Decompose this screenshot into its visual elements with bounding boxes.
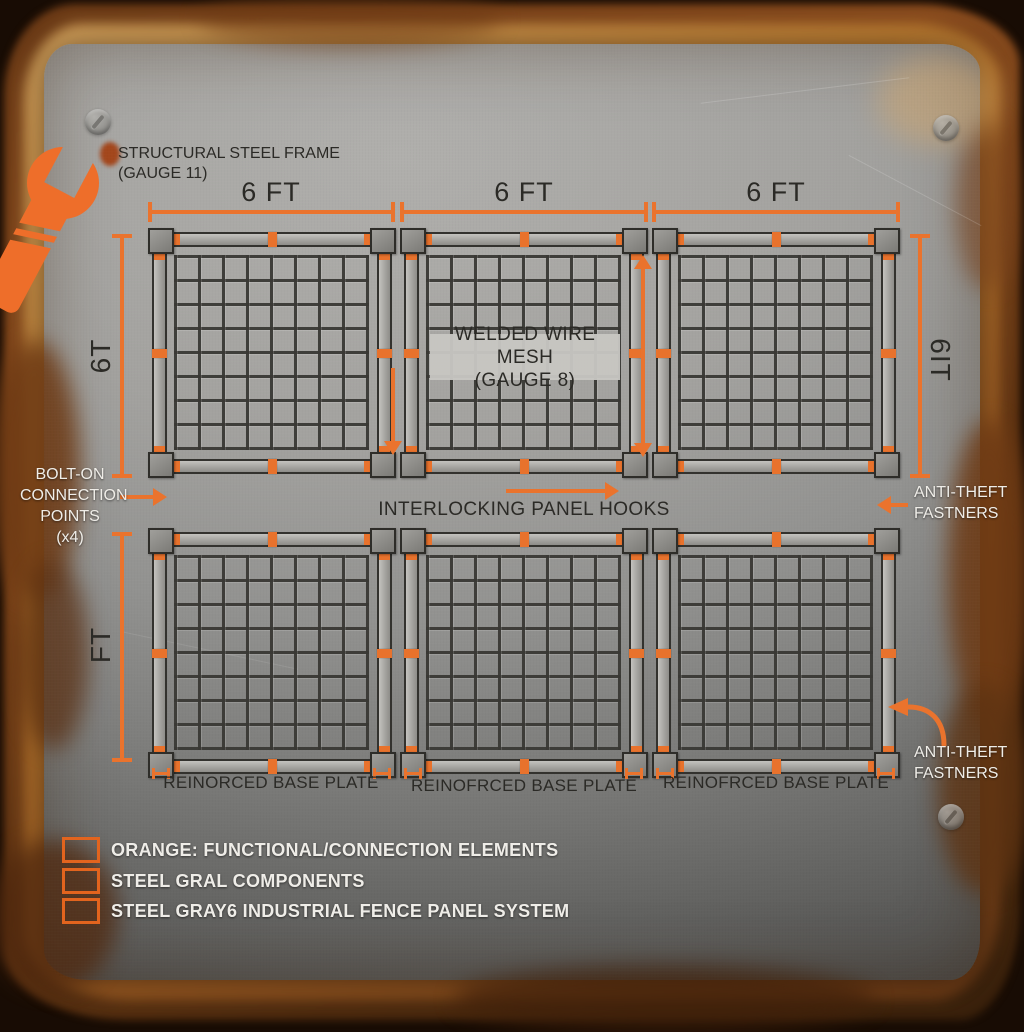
- rust-blob: [956, 120, 1018, 290]
- connector-tick: [772, 532, 781, 547]
- connector-tick: [772, 459, 781, 474]
- legend-swatch-icon: [62, 837, 100, 863]
- connector-tick: [152, 649, 167, 658]
- connector-tick: [881, 349, 896, 358]
- legend-item-orange-elements: ORANGE: FUNCTIONAL/CONNECTION ELEMENTS: [62, 837, 558, 863]
- rust-blob: [454, 966, 874, 1032]
- panel-gap-double-arrow: [641, 268, 645, 444]
- dim-label-left-upper: 6T: [85, 339, 117, 374]
- connector-tick: [377, 649, 392, 658]
- rust-blob: [18, 560, 88, 750]
- industrial-fence-diagram: { "title": { "frame_note": "STRUCTURAL S…: [0, 0, 1024, 1024]
- connector-tick: [520, 459, 529, 474]
- anti-theft-note-lower: ANTI-THEFT FASTNERS: [914, 742, 1007, 784]
- corner-connector: [652, 228, 678, 254]
- connector-tick: [377, 349, 392, 358]
- screw-bottom-right: [938, 804, 964, 830]
- connector-tick: [629, 649, 644, 658]
- corner-connector: [370, 452, 396, 478]
- legend-item-steel-components: STEEL GRAL COMPONENTS: [62, 868, 365, 894]
- corner-connector: [874, 528, 900, 554]
- dimension-line-top-3: [652, 210, 900, 214]
- dim-label-6ft-3: 6 FT: [746, 177, 806, 208]
- connector-tick: [268, 532, 277, 547]
- screw-top-left: [85, 109, 111, 135]
- structural-frame-note: STRUCTURAL STEEL FRAME (GAUGE 11): [118, 144, 340, 184]
- connector-tick: [268, 459, 277, 474]
- fence-panel-r2c2: [400, 528, 648, 778]
- connector-tick: [772, 232, 781, 247]
- connector-tick: [404, 649, 419, 658]
- wire-mesh: [174, 255, 369, 450]
- dimension-line-top-1: [148, 210, 395, 214]
- corner-connector: [400, 528, 426, 554]
- dim-label-left-lower: FT: [85, 627, 117, 663]
- connector-tick: [268, 759, 277, 774]
- corner-connector: [400, 452, 426, 478]
- dimension-line-left-upper: [120, 234, 124, 478]
- corner-connector: [622, 228, 648, 254]
- legend-item-system-title: STEEL GRAY6 INDUSTRIAL FENCE PANEL SYSTE…: [62, 898, 569, 924]
- dimension-line-top-2: [400, 210, 648, 214]
- connector-tick: [520, 759, 529, 774]
- connector-tick: [656, 349, 671, 358]
- connector-tick: [520, 232, 529, 247]
- connector-tick: [656, 649, 671, 658]
- fence-panel-r1c3: [652, 228, 900, 478]
- corner-connector: [652, 452, 678, 478]
- fence-panel-r2c3: [652, 528, 900, 778]
- fence-panel-r1c1: [148, 228, 396, 478]
- interlocking-note: INTERLOCKING PANEL HOOKS: [378, 499, 670, 521]
- dim-label-6ft-2: 6 FT: [494, 177, 554, 208]
- legend-swatch-icon: [62, 898, 100, 924]
- connector-tick: [520, 532, 529, 547]
- corner-connector: [148, 452, 174, 478]
- corner-connector: [148, 528, 174, 554]
- base-plate-label-2: REINOFRCED BASE PLATE: [411, 776, 637, 796]
- dimension-line-left-lower: [120, 532, 124, 762]
- corner-connector: [370, 528, 396, 554]
- wire-mesh-note: WELDED WIRE MESH (GAUGE 8): [430, 334, 620, 380]
- corner-connector: [652, 528, 678, 554]
- corner-connector: [400, 228, 426, 254]
- connector-tick: [881, 649, 896, 658]
- corner-connector: [874, 452, 900, 478]
- corner-connector: [622, 528, 648, 554]
- connector-tick: [772, 759, 781, 774]
- anti-theft-arrow-upper: [890, 503, 908, 507]
- legend-label: ORANGE: FUNCTIONAL/CONNECTION ELEMENTS: [111, 840, 558, 861]
- wire-mesh: [174, 555, 369, 750]
- screw-top-right: [933, 115, 959, 141]
- panel-gap-down-arrow: [391, 368, 395, 442]
- connector-tick: [268, 232, 277, 247]
- base-plate-mark: [404, 772, 422, 775]
- connector-tick: [404, 349, 419, 358]
- corner-connector: [148, 228, 174, 254]
- wire-mesh: [678, 555, 873, 750]
- legend-label: STEEL GRAY6 INDUSTRIAL FENCE PANEL SYSTE…: [111, 901, 569, 922]
- dim-label-right-upper: 6IT: [924, 338, 956, 381]
- base-plate-mark: [625, 772, 643, 775]
- wire-mesh: [426, 555, 621, 750]
- base-plate-label-3: REINOFRCED BASE PLATE: [663, 773, 889, 793]
- base-plate-label-1: REINORCED BASE PLATE: [163, 773, 378, 793]
- corner-connector: [370, 228, 396, 254]
- dimension-line-right-upper: [918, 234, 922, 478]
- wire-mesh: [678, 255, 873, 450]
- connector-tick: [152, 349, 167, 358]
- legend-swatch-icon: [62, 868, 100, 894]
- corner-connector: [874, 228, 900, 254]
- anti-theft-note-upper: ANTI-THEFT FASTNERS: [914, 482, 1007, 524]
- interlocking-arrow: [506, 489, 606, 493]
- bolt-on-note: BOLT-ON CONNECTION POINTS (x4): [20, 464, 120, 548]
- fence-panel-r2c1: [148, 528, 396, 778]
- legend-label: STEEL GRAL COMPONENTS: [111, 871, 365, 892]
